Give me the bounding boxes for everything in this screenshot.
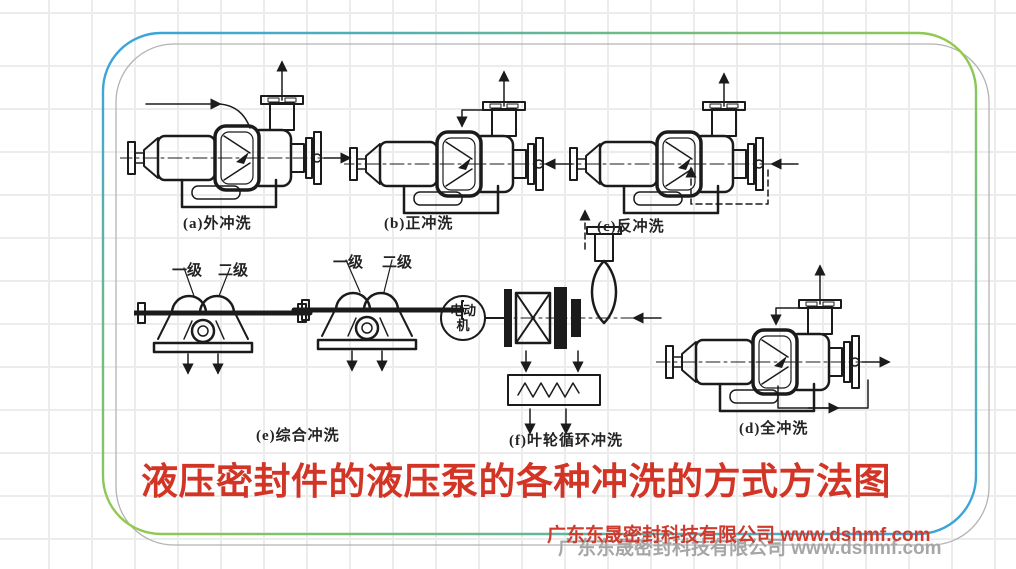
impeller-loop <box>592 261 616 323</box>
stage-label-first-right: 一级 <box>333 251 363 272</box>
motor-label-line2: 机 <box>456 318 469 333</box>
caption-a: (a)外冲洗 <box>183 212 252 233</box>
bottom-return-line <box>778 380 868 408</box>
cooler-coil <box>518 383 579 397</box>
reverse-return-line <box>691 168 768 204</box>
motor-label-line1: 电动 <box>450 303 476 318</box>
caption-e: (e)综合冲洗 <box>256 424 340 445</box>
caption-c: (c)反冲洗 <box>597 215 665 236</box>
caption-b: (b)正冲洗 <box>384 212 453 233</box>
caption-d: (d)全冲洗 <box>739 417 808 438</box>
page-title: 液压密封件的液压泵的各种冲洗的方式方法图 <box>141 451 891 505</box>
pump-diagram-reverse-flush <box>556 70 801 250</box>
stage-label-first-left: 一级 <box>172 259 202 280</box>
flush-line-from-discharge <box>462 110 492 126</box>
watermark: 广东东晟密封科技有限公司 www.dshmf.com <box>547 520 931 547</box>
flush-line-from-discharge <box>776 308 806 324</box>
caption-f: (f)叶轮循环冲洗 <box>509 429 623 450</box>
coupling-box <box>516 293 550 343</box>
impeller-circulation-diagram: 电动 机 <box>426 203 666 443</box>
pump-diagram-forward-flush <box>344 66 574 241</box>
pump-diagram-full-flush <box>656 258 896 443</box>
stage-label-second-right: 二级 <box>382 251 412 272</box>
stage-label-second-left: 二级 <box>218 259 248 280</box>
motor-circle <box>441 296 485 340</box>
riser-pipe <box>595 234 613 261</box>
slide-canvas: 电动 机 一级 二级 一级 二级 (a)外冲洗 (b)正冲洗 (c)反冲洗 (e… <box>0 0 1016 569</box>
cooler-box <box>508 375 600 405</box>
pump-diagram-external-flush <box>120 56 355 236</box>
